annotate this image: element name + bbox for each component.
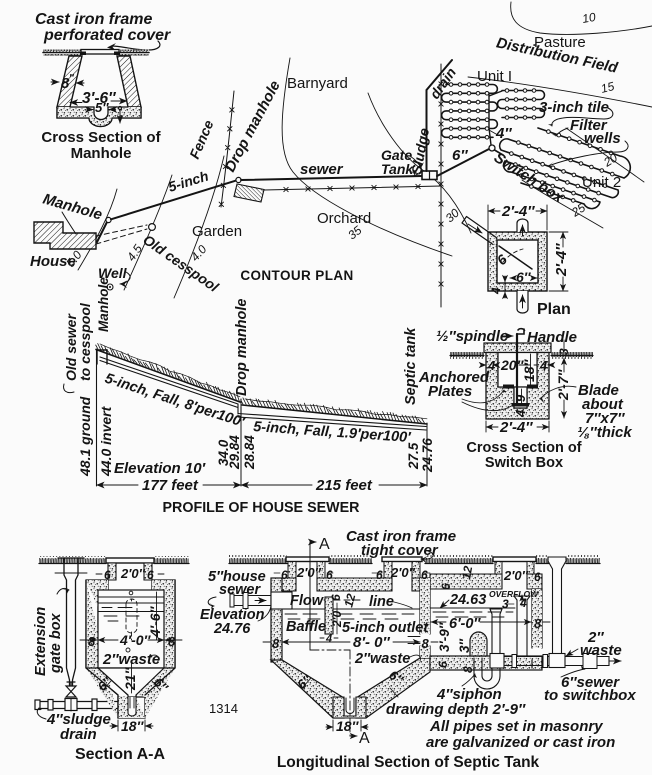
svg-text:Extension: Extension	[33, 607, 49, 676]
svg-text:4: 4	[519, 596, 527, 610]
svg-text:perforated cover: perforated cover	[43, 27, 171, 44]
svg-text:are galvanized or cast iron: are galvanized or cast iron	[426, 734, 615, 751]
svg-text:10: 10	[581, 10, 597, 26]
svg-text:44.0 invert: 44.0 invert	[98, 405, 114, 477]
svg-text:24.63: 24.63	[449, 592, 486, 608]
svg-text:2″waste: 2″waste	[354, 651, 410, 667]
svg-text:6: 6	[104, 568, 111, 582]
svg-text:Baffle: Baffle	[286, 619, 326, 635]
svg-text:18″: 18″	[336, 718, 360, 734]
svg-text:3′-9″: 3′-9″	[437, 622, 452, 652]
svg-text:8: 8	[534, 616, 542, 631]
svg-text:House: House	[30, 253, 76, 270]
svg-text:Elevation 10′: Elevation 10′	[114, 460, 207, 477]
svg-text:6: 6	[436, 661, 450, 668]
svg-text:Cast iron frame: Cast iron frame	[35, 11, 152, 28]
svg-text:gate box: gate box	[48, 612, 64, 674]
svg-text:24.76: 24.76	[420, 438, 435, 473]
svg-text:⅛″thick: ⅛″thick	[577, 424, 632, 441]
svg-text:2′0″: 2′0″	[503, 568, 529, 583]
svg-text:A: A	[319, 536, 330, 553]
svg-text:48.1 ground: 48.1 ground	[77, 396, 93, 477]
svg-text:6: 6	[281, 568, 288, 582]
svg-text:Unit I: Unit I	[477, 68, 512, 85]
svg-text:2′0″: 2′0″	[296, 565, 322, 580]
svg-text:6: 6	[329, 594, 343, 601]
svg-text:177 feet: 177 feet	[142, 477, 199, 494]
svg-text:3-inch tile: 3-inch tile	[539, 99, 609, 116]
svg-text:24.76: 24.76	[213, 621, 251, 637]
svg-text:6: 6	[376, 568, 383, 582]
svg-text:wells: wells	[584, 130, 621, 147]
svg-text:18″: 18″	[121, 718, 145, 734]
svg-text:CONTOUR PLAN: CONTOUR PLAN	[240, 268, 353, 283]
svg-text:½″spindle: ½″spindle	[436, 328, 508, 345]
svg-text:6: 6	[534, 570, 541, 584]
svg-text:2′0″: 2′0″	[120, 566, 146, 581]
svg-text:8: 8	[168, 634, 176, 649]
svg-text:1314: 1314	[209, 701, 238, 716]
svg-text:6″: 6″	[516, 269, 532, 285]
svg-text:4′-0″: 4′-0″	[119, 632, 152, 648]
svg-text:215 feet: 215 feet	[315, 477, 373, 494]
svg-text:Plan: Plan	[537, 301, 571, 318]
svg-text:Section A-A: Section A-A	[75, 746, 166, 763]
svg-text:Longitudinal Section of Septic: Longitudinal Section of Septic Tank	[277, 754, 540, 771]
svg-text:6: 6	[147, 568, 154, 582]
svg-text:OVERFLOW: OVERFLOW	[489, 589, 539, 599]
svg-text:8: 8	[461, 666, 475, 673]
svg-text:6: 6	[439, 583, 453, 590]
svg-text:2′-7″: 2′-7″	[555, 368, 571, 401]
svg-text:5″: 5″	[95, 100, 109, 115]
svg-text:drawing depth 2′-9″: drawing depth 2′-9″	[386, 701, 526, 718]
svg-text:2′0″: 2′0″	[390, 565, 416, 580]
svg-text:Drop manhole: Drop manhole	[234, 299, 250, 396]
svg-text:6′-0″: 6′-0″	[449, 616, 481, 632]
svg-text:27.5: 27.5	[406, 442, 421, 470]
svg-text:4: 4	[325, 633, 332, 645]
svg-text:Manhole: Manhole	[96, 277, 111, 332]
svg-text:waste: waste	[580, 642, 622, 659]
svg-text:Garden: Garden	[192, 223, 242, 240]
svg-text:to cesspool: to cesspool	[77, 302, 93, 381]
svg-text:Septic tank: Septic tank	[403, 327, 419, 405]
svg-text:6: 6	[326, 568, 333, 582]
svg-text:2′-4″: 2′-4″	[499, 419, 533, 436]
svg-text:8: 8	[422, 636, 430, 651]
svg-text:Barnyard: Barnyard	[287, 75, 348, 92]
svg-text:6: 6	[421, 568, 428, 582]
svg-text:4: 4	[513, 409, 528, 418]
svg-text:6″: 6″	[452, 147, 468, 164]
svg-text:Plates: Plates	[428, 383, 472, 400]
svg-text:8′- 0″: 8′- 0″	[353, 634, 390, 651]
svg-text:Cross Section of: Cross Section of	[41, 129, 161, 146]
svg-text:Cross Section of: Cross Section of	[466, 440, 581, 456]
svg-text:sewer: sewer	[300, 161, 344, 178]
svg-text:Manhole: Manhole	[71, 145, 132, 162]
svg-text:8: 8	[272, 636, 280, 651]
svg-text:2′-4″: 2′-4″	[501, 203, 535, 220]
svg-text:18″: 18″	[521, 358, 537, 382]
svg-text:sewer: sewer	[219, 582, 261, 598]
svg-text:8: 8	[88, 634, 96, 649]
svg-text:21″: 21″	[122, 666, 138, 691]
svg-text:3: 3	[557, 348, 571, 355]
svg-text:A: A	[359, 730, 370, 747]
svg-text:29.84: 29.84	[227, 435, 242, 470]
svg-text:line: line	[369, 594, 394, 610]
svg-text:Flow: Flow	[290, 593, 325, 609]
svg-text:PROFILE OF HOUSE SEWER: PROFILE OF HOUSE SEWER	[163, 500, 361, 516]
svg-text:2′-4″: 2′-4″	[553, 243, 570, 277]
svg-text:Orchard: Orchard	[317, 210, 371, 227]
svg-text:4: 4	[489, 287, 503, 295]
svg-text:Switch Box: Switch Box	[485, 455, 563, 471]
svg-text:4: 4	[539, 358, 548, 373]
svg-text:9: 9	[513, 394, 528, 402]
svg-text:to switchbox: to switchbox	[544, 687, 636, 704]
svg-text:12: 12	[459, 565, 475, 581]
svg-text:Unit 2: Unit 2	[582, 174, 621, 191]
svg-text:28.84: 28.84	[242, 435, 257, 470]
svg-text:Handle: Handle	[527, 329, 577, 346]
svg-text:drain: drain	[60, 726, 97, 743]
svg-text:All pipes set in masonry: All pipes set in masonry	[429, 718, 603, 735]
